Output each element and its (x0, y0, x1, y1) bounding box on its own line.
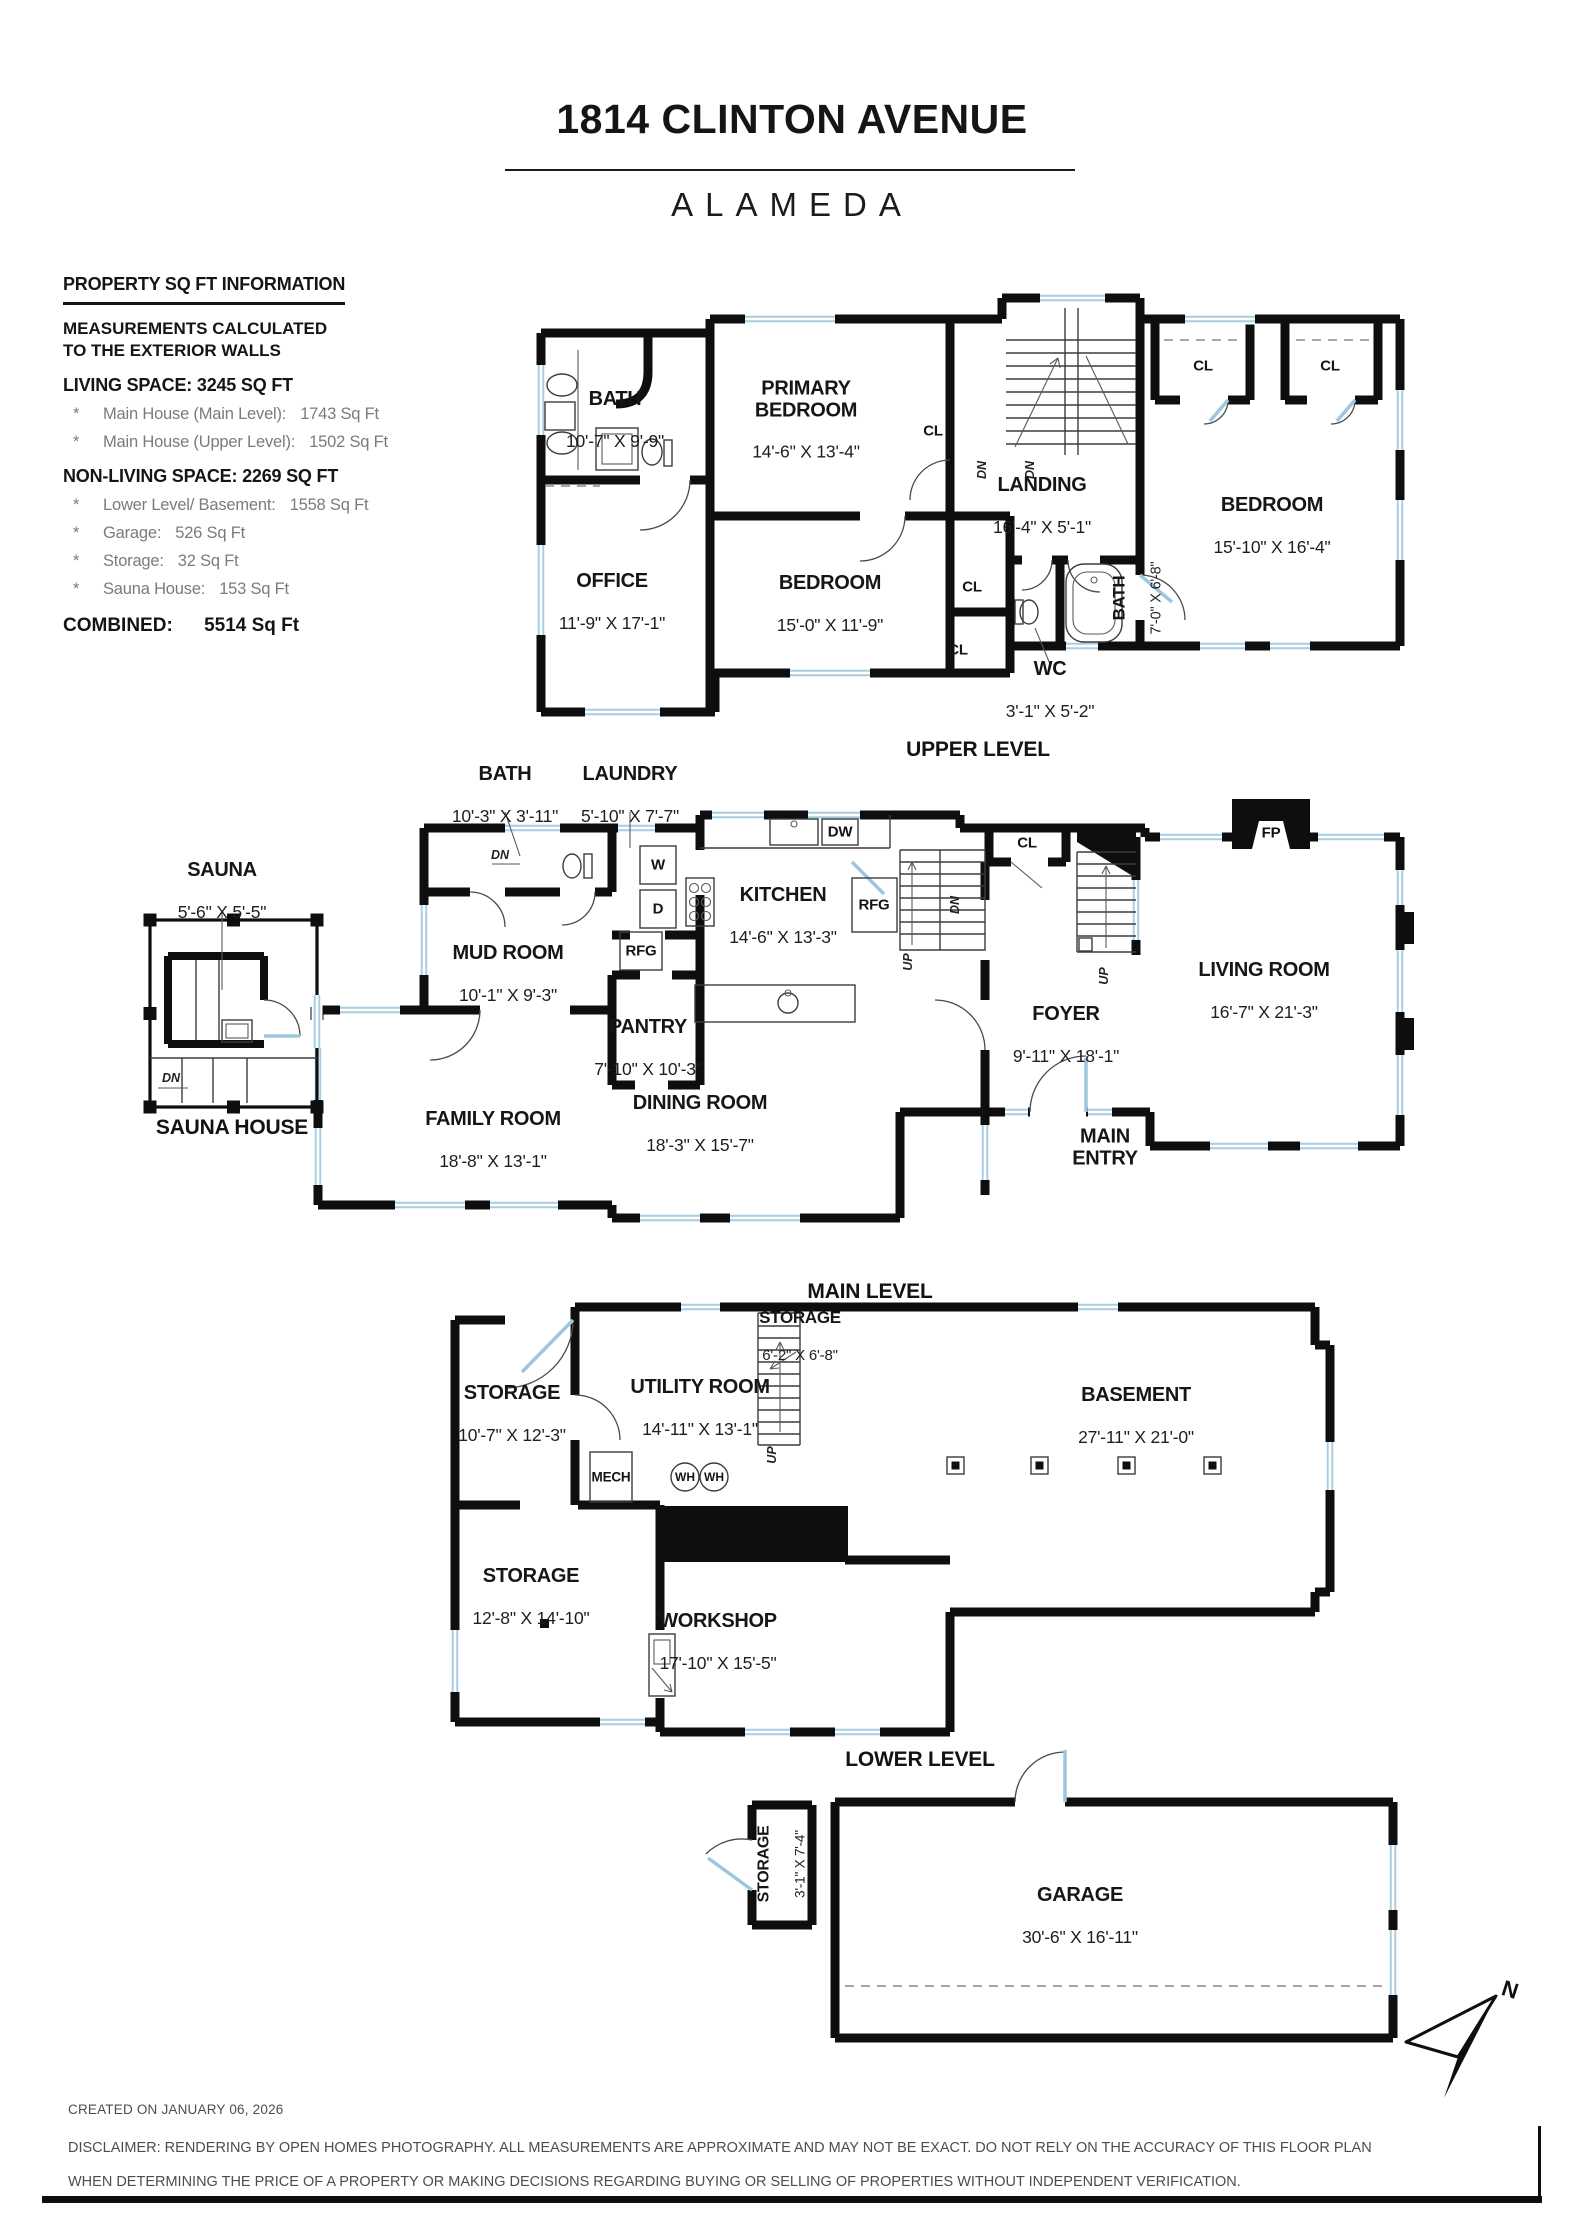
footer-bar (42, 2196, 1542, 2203)
stairs-down-label: DN (162, 1071, 180, 1085)
wall-mass (658, 1506, 848, 1562)
floor-plan-page: 1814 CLINTON AVENUE ALAMEDA PROPERTY SQ … (0, 0, 1584, 2240)
room-label-main-bath: BATH 10'-3" X 3'-11" (452, 746, 558, 844)
sauna-house-caption: SAUNA HOUSE (156, 1116, 308, 1140)
room-label-utility-room: UTILITY ROOM 14'-11" X 13'-1" (630, 1359, 769, 1457)
room-label-bedroom-right: BEDROOM 15'-10" X 16'-4" (1213, 477, 1330, 575)
footer-right-edge (1538, 2126, 1541, 2196)
room-label-primary-bedroom: PRIMARY BEDROOM 14'-6" X 13'-4" (752, 360, 860, 479)
room-label-wc: WC 3'-1" X 5'-2" (1006, 641, 1095, 739)
room-label-upper-bath2: BATH 7'-0" X 6'-8" (1092, 562, 1183, 635)
room-label-living-room: LIVING ROOM 16'-7" X 21'-3" (1198, 942, 1329, 1040)
stairs-up-label: UP (1097, 967, 1111, 984)
created-date: CREATED ON JANUARY 06, 2026 (68, 2102, 283, 2117)
room-label-workshop: WORKSHOP 17'-10" X 15'-5" (659, 1593, 777, 1691)
room-label-kitchen: KITCHEN 14'-6" X 13'-3" (729, 867, 837, 965)
lower-level-caption: LOWER LEVEL (845, 1748, 994, 1772)
room-label-bedroom-mid: BEDROOM 15'-0" X 11'-9" (777, 555, 883, 653)
upper-level-caption: UPPER LEVEL (906, 738, 1050, 762)
closet-label: CL (923, 423, 943, 440)
room-label-family-room: FAMILY ROOM 18'-8" X 13'-1" (425, 1091, 561, 1189)
room-label-foyer: FOYER 9'-11" X 18'-1" (1013, 986, 1119, 1084)
water-heater-label: WH (675, 1470, 695, 1484)
stairs-up-label: UP (901, 953, 915, 970)
room-label-dining-room: DINING ROOM 18'-3" X 15'-7" (633, 1075, 767, 1173)
room-label-basement: BASEMENT 27'-11" X 21'-0" (1078, 1367, 1194, 1465)
stairs-down-label: DN (975, 461, 989, 479)
disclaimer-line-2: WHEN DETERMINING THE PRICE OF A PROPERTY… (68, 2174, 1241, 2190)
room-label-garage-storage: STORAGE 3'-1" X 7'-4" (737, 1826, 826, 1903)
room-label-upper-bath: BATH 10'-7" X 9'-9" (566, 371, 664, 469)
room-label-storage-bl: STORAGE 12'-8" X 14'-10" (472, 1548, 589, 1646)
room-label-garage: GARAGE 30'-6" X 16'-11" (1022, 1867, 1138, 1965)
disclaimer-line-1: DISCLAIMER: RENDERING BY OPEN HOMES PHOT… (68, 2140, 1372, 2156)
mech-label: MECH (592, 1470, 631, 1485)
stairs-up-label: UP (765, 1446, 779, 1463)
stairs-down-label: DN (491, 848, 509, 862)
stairs-down-label: DN (1023, 461, 1037, 479)
room-label-landing: LANDING 16'-4" X 5'-1" (993, 457, 1091, 555)
room-label-laundry: LAUNDRY 5'-10" X 7'-7" (581, 746, 679, 844)
fridge-label: RFG (625, 943, 656, 960)
closet-label: CL (1017, 835, 1037, 852)
room-label-sauna: SAUNA 5'-6" X 5'-5" (178, 842, 267, 940)
room-label-office: OFFICE 11'-9" X 17'-1" (559, 553, 665, 651)
washer-label: W (651, 857, 665, 874)
closet-label: CL (1320, 358, 1340, 375)
room-label-main-entry: MAIN ENTRY (1072, 1108, 1138, 1187)
fridge-label: RFG (858, 897, 889, 914)
closet-label: CL (948, 642, 968, 659)
room-label-mud-room: MUD ROOM 10'-1" X 9'-3" (453, 925, 564, 1023)
room-label-storage-tl: STORAGE 10'-7" X 12'-3" (458, 1365, 566, 1463)
lower-level-plan (455, 1307, 1330, 1732)
water-heater-label: WH (704, 1470, 724, 1484)
fireplace-label: FP (1262, 825, 1281, 842)
compass-icon (1406, 1996, 1496, 2098)
closet-label: CL (962, 579, 982, 596)
dryer-label: D (653, 901, 664, 918)
stairs-down-label: DN (948, 896, 962, 914)
closet-label: CL (1193, 358, 1213, 375)
dishwasher-label: DW (828, 824, 853, 841)
upper-wc-toilet (1015, 600, 1038, 624)
room-label-storage-tr: STORAGE 6'-2" X 6'-8" (759, 1291, 841, 1383)
